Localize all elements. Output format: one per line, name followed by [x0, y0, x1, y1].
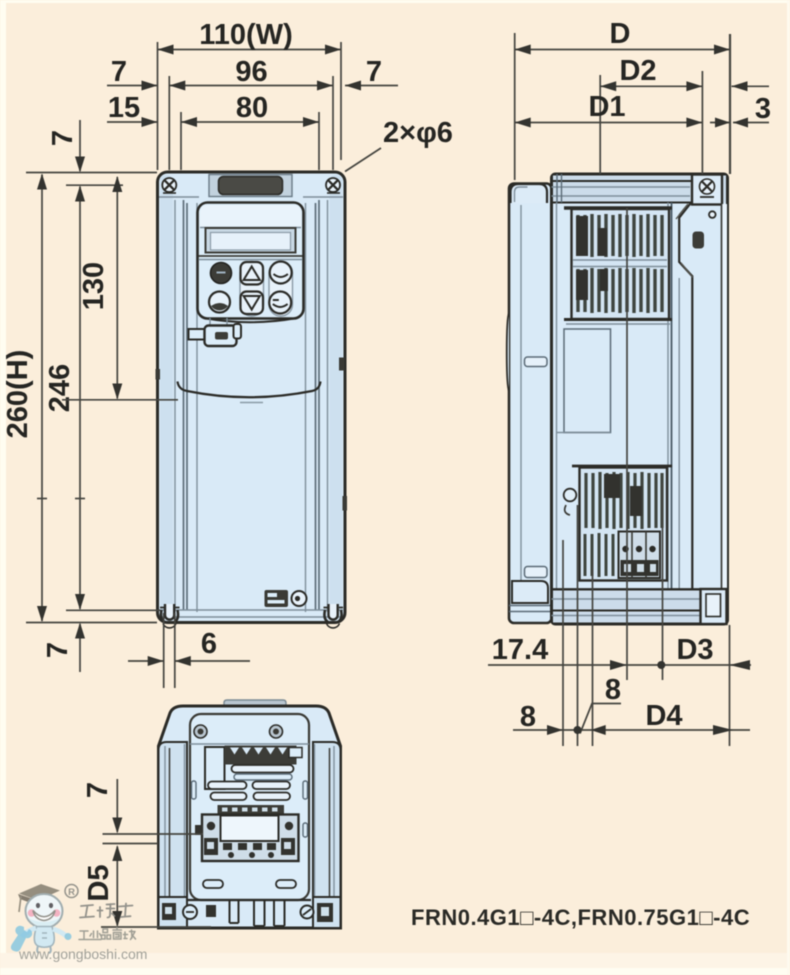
svg-text:15: 15 [108, 92, 140, 124]
svg-text:7: 7 [42, 642, 74, 658]
svg-text:17.4: 17.4 [492, 634, 548, 666]
svg-text:7: 7 [47, 130, 79, 146]
svg-text:7: 7 [366, 56, 382, 88]
svg-text:130: 130 [78, 262, 110, 310]
svg-text:260(H): 260(H) [2, 350, 34, 439]
svg-text:7: 7 [111, 56, 127, 88]
svg-text:96: 96 [235, 56, 267, 88]
svg-text:110(W): 110(W) [199, 19, 292, 51]
svg-text:FRN0.4G1□-4C,FRN0.75G1□-4C: FRN0.4G1□-4C,FRN0.75G1□-4C [411, 905, 750, 930]
svg-text:3: 3 [755, 93, 771, 125]
svg-text:6: 6 [201, 628, 217, 660]
svg-text:246: 246 [44, 364, 76, 412]
svg-text:R: R [68, 887, 75, 898]
svg-text:7: 7 [82, 782, 114, 798]
svg-text:2×φ6: 2×φ6 [383, 117, 453, 149]
svg-text:8: 8 [605, 674, 621, 706]
svg-text:D1: D1 [588, 91, 625, 123]
svg-text:80: 80 [236, 92, 268, 124]
svg-text:8: 8 [520, 701, 536, 733]
svg-text:D: D [610, 18, 631, 50]
svg-text:D3: D3 [676, 634, 713, 666]
svg-text:D2: D2 [619, 55, 656, 87]
svg-text:D5: D5 [83, 864, 115, 901]
svg-text:D4: D4 [645, 700, 682, 732]
svg-text:www.gongboshi.com: www.gongboshi.com [18, 946, 147, 962]
